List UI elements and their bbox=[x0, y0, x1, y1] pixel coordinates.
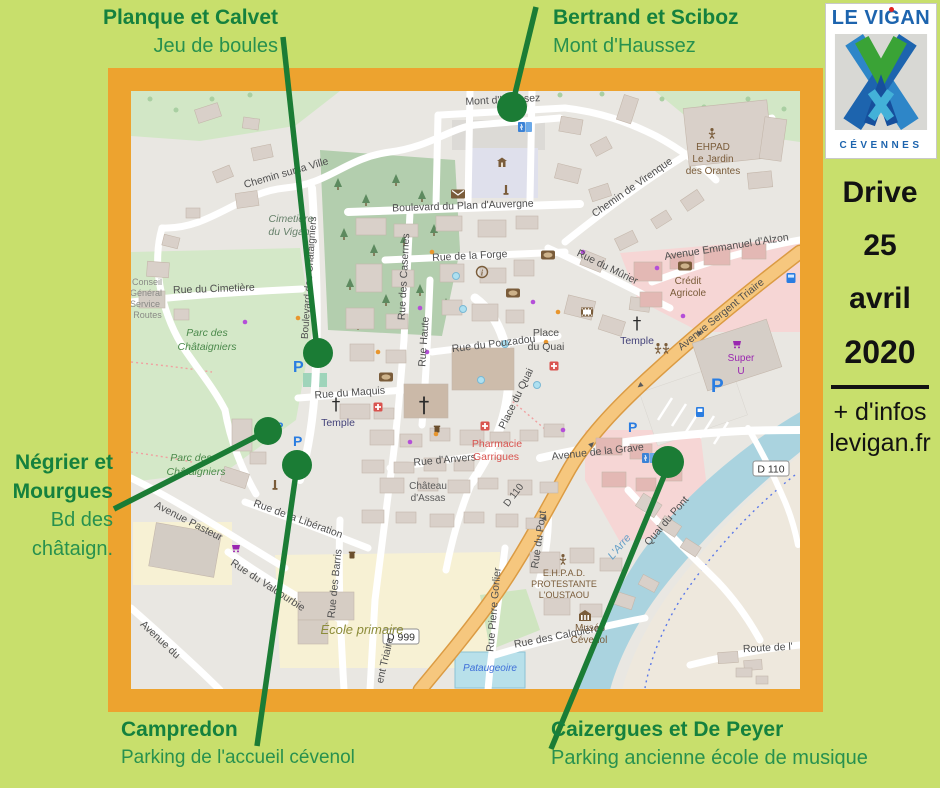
park-label: Châtaigniers bbox=[178, 341, 238, 353]
pharmacy-label: Pharmacie bbox=[472, 438, 522, 450]
svg-text:P: P bbox=[293, 359, 304, 376]
logo-subtitle: CÉVENNES bbox=[826, 140, 936, 151]
bank-icon bbox=[506, 289, 520, 298]
supermarket-label: Super bbox=[728, 353, 755, 364]
drive-date-block: Drive 25 avril 2020 + d'infos levigan.fr bbox=[820, 166, 940, 459]
bank-icon bbox=[678, 262, 692, 271]
pharmacy-label: Garrigues bbox=[473, 451, 519, 463]
bank-label: Crédit bbox=[675, 276, 702, 287]
le-vigan-logo: LE VIGAN CÉVENNES bbox=[825, 3, 937, 159]
ehpad-oustaou-label: E.H.P.A.D. bbox=[543, 568, 585, 578]
logo-red-dot-icon bbox=[889, 7, 894, 12]
street-label: Rue de la Forge bbox=[432, 248, 508, 264]
callout-subtitle: Parking ancienne école de musique bbox=[551, 744, 940, 772]
museum-label: Musée bbox=[575, 623, 605, 634]
drive-month: avril bbox=[820, 272, 940, 325]
family-icon bbox=[655, 343, 661, 354]
drive-word: Drive bbox=[820, 166, 940, 219]
callout-bertrand: Bertrand et Sciboz Mont d'Haussez bbox=[553, 4, 853, 60]
supermarket-label: U bbox=[737, 366, 744, 377]
svg-text:†: † bbox=[633, 314, 642, 334]
website-link[interactable]: levigan.fr bbox=[820, 428, 940, 459]
cemetery-label: du Vigan bbox=[268, 226, 309, 238]
museum-label: Cévenol bbox=[571, 635, 608, 646]
street-label: Rue du Maquis bbox=[314, 385, 385, 402]
callout-planque: Planque et Calvet Jeu de boules bbox=[60, 4, 278, 60]
bank-icon bbox=[379, 373, 393, 382]
ehpad-icon bbox=[560, 554, 566, 565]
drive-day: 25 bbox=[820, 219, 940, 272]
callout-title: Mourgues bbox=[0, 477, 113, 506]
cinema-icon bbox=[581, 308, 593, 317]
charging-station-icon bbox=[518, 122, 532, 132]
bank-label: Agricole bbox=[670, 288, 707, 299]
cemetery-label: Cimetière bbox=[269, 213, 314, 225]
street-label: Place bbox=[533, 327, 559, 339]
bank-icon bbox=[541, 251, 555, 260]
svg-text:†: † bbox=[419, 393, 430, 417]
pharmacy-icon bbox=[550, 362, 559, 371]
callout-caizergues: Caizergues et De Peyer Parking ancienne … bbox=[551, 716, 940, 772]
shop-icon bbox=[232, 545, 240, 552]
ehpad-label: Le Jardin bbox=[692, 154, 733, 165]
street-label: Rue de la Libération bbox=[252, 497, 345, 540]
conseil-label: Conseil bbox=[132, 277, 162, 287]
callout-subtitle: Bd des bbox=[0, 506, 113, 535]
more-info-label: + d'infos bbox=[820, 397, 940, 428]
conseil-label: Général bbox=[131, 288, 162, 298]
svg-text:P: P bbox=[711, 376, 724, 397]
callout-campredon: Campredon Parking de l'accueil cévenol bbox=[121, 716, 551, 772]
svg-text:P: P bbox=[276, 421, 283, 433]
conseil-label: Service bbox=[131, 299, 160, 309]
callout-negrier: Négrier et Mourgues Bd des châtaign. bbox=[0, 448, 113, 564]
temple-label: Temple bbox=[620, 335, 654, 347]
conseil-label: s Routes bbox=[131, 310, 162, 320]
chateau-label: d'Assas bbox=[411, 493, 446, 504]
recycling-icon bbox=[434, 426, 440, 433]
school-label: École primaire bbox=[320, 622, 403, 637]
svg-text:P: P bbox=[628, 419, 637, 435]
map-frame: i bbox=[108, 68, 823, 712]
callout-title: Bertrand et Sciboz bbox=[553, 4, 853, 32]
fuel-station-icon bbox=[696, 407, 704, 417]
callout-title: Planque et Calvet bbox=[60, 4, 278, 32]
ehpad-oustaou-label: L'OUSTAOU bbox=[539, 590, 590, 600]
post-office-icon bbox=[451, 190, 465, 199]
street-label: Avenue du bbox=[138, 618, 183, 661]
callout-title: Négrier et bbox=[0, 448, 113, 477]
pharmacy-icon bbox=[374, 403, 383, 412]
street-label: du Quai bbox=[528, 341, 565, 353]
ehpad-oustaou-label: PROTESTANTE bbox=[531, 579, 597, 589]
temple-label: Temple bbox=[321, 417, 355, 429]
callout-title: Caizergues et De Peyer bbox=[551, 716, 940, 744]
bus-stop-icon bbox=[787, 273, 796, 283]
map-surface: i bbox=[131, 91, 800, 689]
callout-title: Campredon bbox=[121, 716, 551, 744]
drive-year: 2020 bbox=[820, 325, 940, 379]
chateau-label: Château bbox=[409, 481, 447, 492]
recycling-icon bbox=[349, 552, 355, 559]
poster-canvas: i bbox=[0, 0, 940, 788]
d110-badge: D 110 bbox=[757, 464, 784, 476]
divider bbox=[831, 385, 929, 389]
ehpad-label: EHPAD bbox=[696, 142, 730, 153]
park-label: Parc des bbox=[170, 452, 212, 464]
charging-station-icon bbox=[642, 453, 656, 463]
callout-subtitle: Mont d'Haussez bbox=[553, 32, 853, 60]
callout-subtitle: Parking de l'accueil cévenol bbox=[121, 744, 551, 772]
monument-icon bbox=[273, 480, 278, 490]
logo-title: LE VIGAN bbox=[826, 7, 936, 30]
map-svg: i bbox=[131, 91, 800, 689]
callout-subtitle: châtaign. bbox=[0, 535, 113, 564]
river-label: L'Arre bbox=[606, 532, 634, 562]
pool-label: Pataugeoire bbox=[463, 663, 517, 674]
logo-x-emblem-icon bbox=[833, 30, 929, 134]
pharmacy-icon bbox=[481, 422, 490, 431]
callout-subtitle: Jeu de boules bbox=[60, 32, 278, 60]
svg-text:P: P bbox=[293, 433, 302, 449]
ehpad-label: des Orantes bbox=[686, 166, 740, 177]
park-label: Châtaigniers bbox=[167, 466, 227, 478]
park-label: Parc des bbox=[186, 327, 228, 339]
